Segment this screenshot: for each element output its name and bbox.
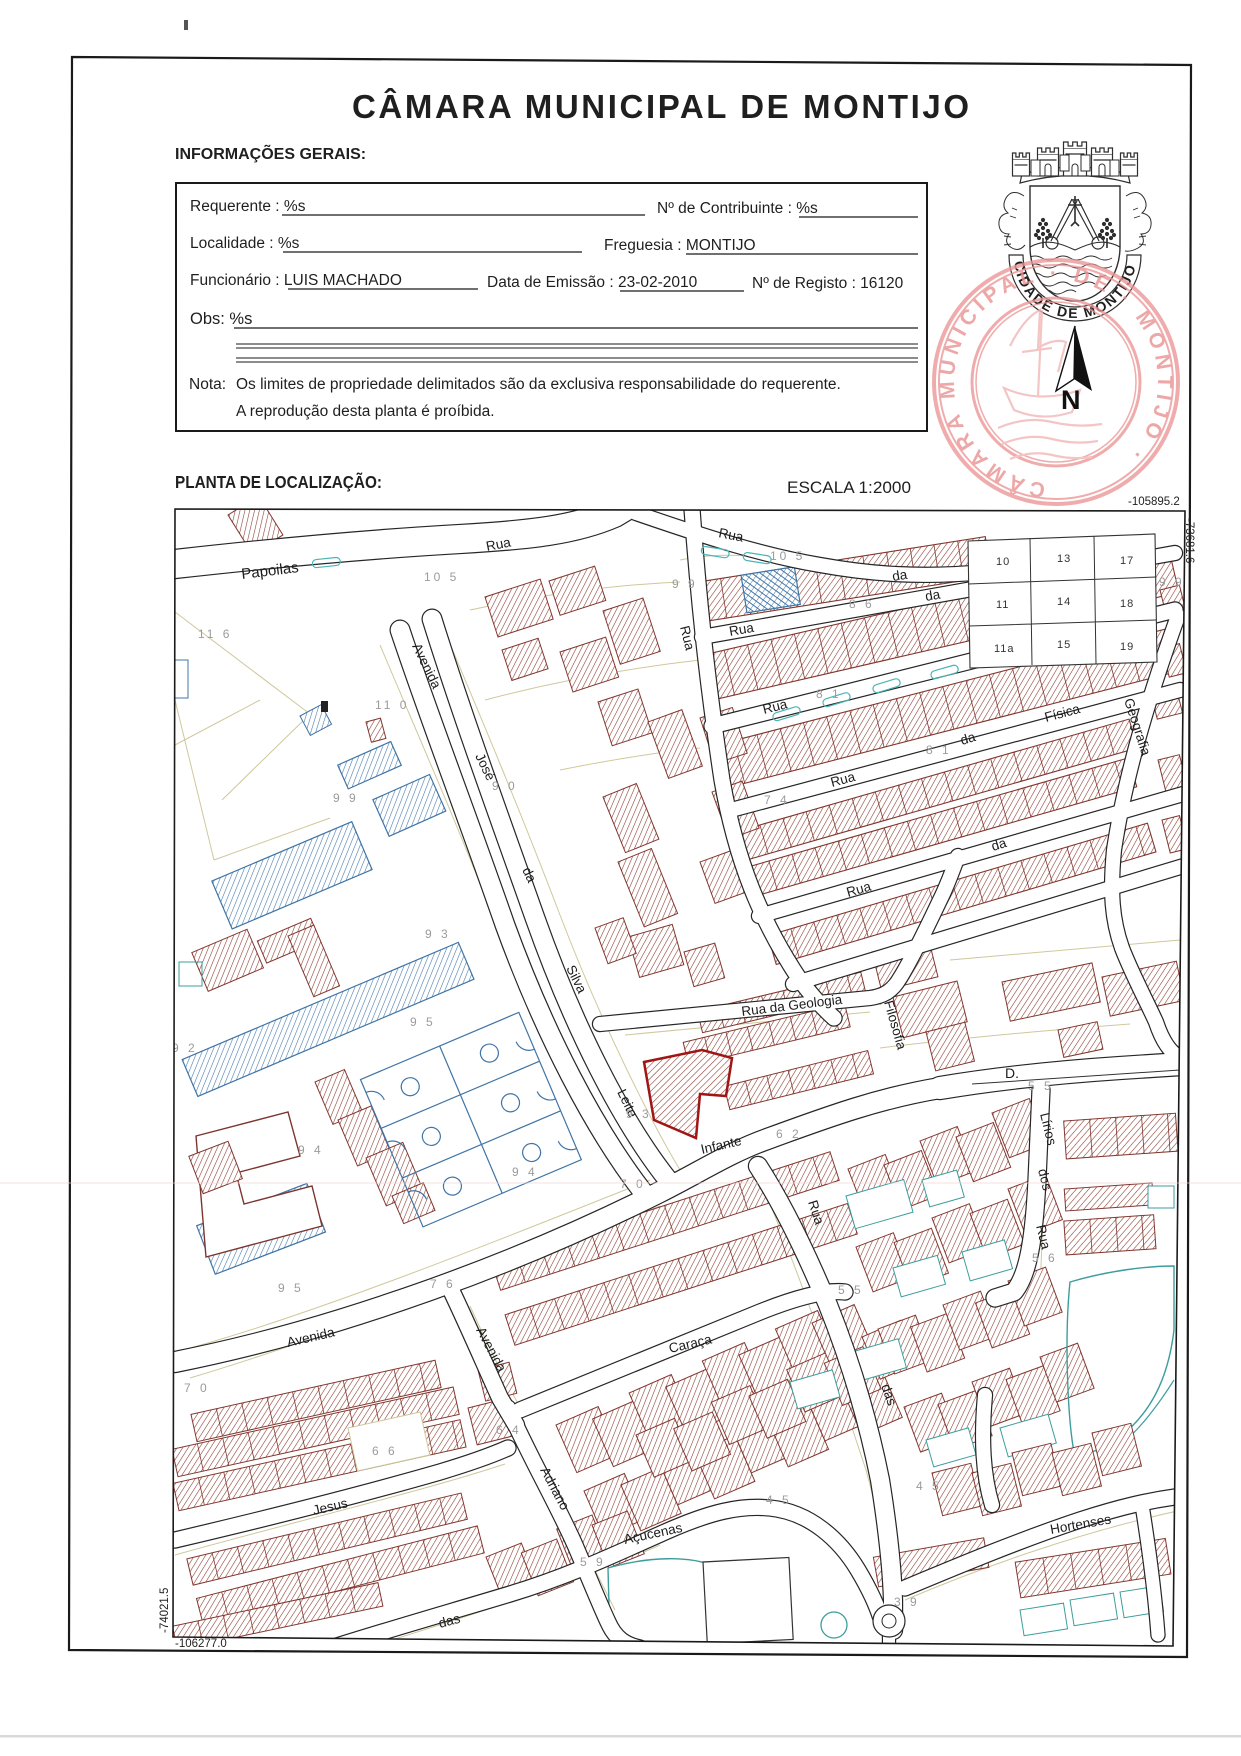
svg-text:D.: D. (1005, 1065, 1019, 1081)
svg-text:3 9: 3 9 (894, 1595, 920, 1609)
svg-text:7 9: 7 9 (108, 614, 134, 628)
svg-text:N: N (1061, 385, 1081, 415)
svg-text:11a: 11a (994, 643, 1015, 655)
svg-text:A reprodução desta planta é pr: A reprodução desta planta é proíbida. (236, 403, 495, 420)
svg-text:Obs: %s: Obs: %s (190, 310, 252, 328)
svg-text:13: 13 (1057, 553, 1071, 565)
svg-text:Data de Emissão : 23-02-2010: Data de Emissão : 23-02-2010 (487, 274, 698, 291)
svg-text:9 4: 9 4 (512, 1165, 538, 1179)
svg-text:5 9: 5 9 (580, 1555, 606, 1569)
svg-text:da: da (891, 567, 909, 584)
svg-text:9 9: 9 9 (1159, 575, 1185, 589)
svg-text:7 0: 7 0 (184, 1381, 210, 1395)
svg-text:9 3: 9 3 (425, 927, 451, 941)
svg-text:-74021.5: -74021.5 (159, 1588, 171, 1633)
svg-text:5 5: 5 5 (838, 1283, 864, 1297)
svg-text:-106277.0: -106277.0 (175, 1638, 227, 1650)
svg-text:PLANTA DE LOCALIZAÇÃO:: PLANTA DE LOCALIZAÇÃO: (175, 471, 382, 492)
svg-text:6 4: 6 4 (496, 1423, 522, 1437)
svg-text:9 2: 9 2 (172, 1041, 198, 1055)
svg-text:Funcionário : LUIS MACHADO: Funcionário : LUIS MACHADO (190, 272, 402, 289)
svg-text:10 5: 10 5 (770, 549, 805, 563)
svg-text:9 3: 9 3 (626, 1107, 652, 1121)
svg-text:7 4: 7 4 (764, 793, 790, 807)
svg-text:14: 14 (1057, 596, 1071, 608)
svg-text:6 2: 6 2 (776, 1127, 802, 1141)
svg-text:9 5: 9 5 (278, 1281, 304, 1295)
svg-text:4 5: 4 5 (916, 1479, 942, 1493)
svg-text:4 5: 4 5 (766, 1493, 792, 1507)
svg-text:9 5: 9 5 (410, 1015, 436, 1029)
svg-text:11: 11 (996, 599, 1009, 611)
svg-text:9 4: 9 4 (298, 1143, 324, 1157)
svg-text:18: 18 (1120, 598, 1134, 610)
svg-text:9 9: 9 9 (672, 577, 698, 591)
svg-text:Nº de Registo : 16120: Nº de Registo : 16120 (752, 275, 904, 292)
svg-text:Nota:: Nota: (189, 376, 226, 393)
svg-text:Nº de Contribuinte : %s: Nº de Contribuinte : %s (657, 200, 818, 217)
svg-text:10: 10 (996, 556, 1010, 568)
svg-text:19: 19 (1120, 641, 1134, 653)
svg-text:da: da (924, 586, 942, 603)
svg-text:Freguesia : MONTIJO: Freguesia : MONTIJO (604, 237, 756, 254)
svg-text:CÂMARA MUNICIPAL DE MONTIJO: CÂMARA MUNICIPAL DE MONTIJO (352, 88, 972, 125)
svg-text:6 6: 6 6 (372, 1444, 398, 1458)
svg-text:-105895.2: -105895.2 (1128, 496, 1180, 508)
svg-text:7 6: 7 6 (430, 1277, 456, 1291)
svg-text:5 5: 5 5 (1028, 1079, 1054, 1093)
svg-text:Localidade : %s: Localidade : %s (190, 235, 300, 252)
svg-text:8 1: 8 1 (816, 687, 842, 701)
svg-text:9 0: 9 0 (492, 779, 518, 793)
svg-text:Requerente : %s: Requerente : %s (190, 198, 306, 215)
svg-text:Caraça: Caraça (667, 1331, 713, 1356)
svg-text:ESCALA 1:2000: ESCALA 1:2000 (787, 479, 911, 497)
svg-text:8 6: 8 6 (849, 597, 875, 611)
svg-text:9 9: 9 9 (333, 791, 359, 805)
svg-text:INFORMAÇÕES GERAIS:: INFORMAÇÕES GERAIS: (175, 143, 366, 163)
svg-text:11 0: 11 0 (375, 698, 409, 712)
svg-text:11 6: 11 6 (198, 627, 232, 641)
svg-text:Rua: Rua (829, 769, 857, 790)
svg-text:17: 17 (1120, 555, 1134, 567)
svg-text:Os limites de propriedade deli: Os limites de propriedade delimitados sã… (236, 376, 841, 393)
svg-text:10 5: 10 5 (424, 570, 459, 584)
svg-text:15: 15 (1057, 639, 1071, 651)
svg-text:8 1: 8 1 (926, 743, 952, 757)
svg-text:5 6: 5 6 (1032, 1251, 1058, 1265)
